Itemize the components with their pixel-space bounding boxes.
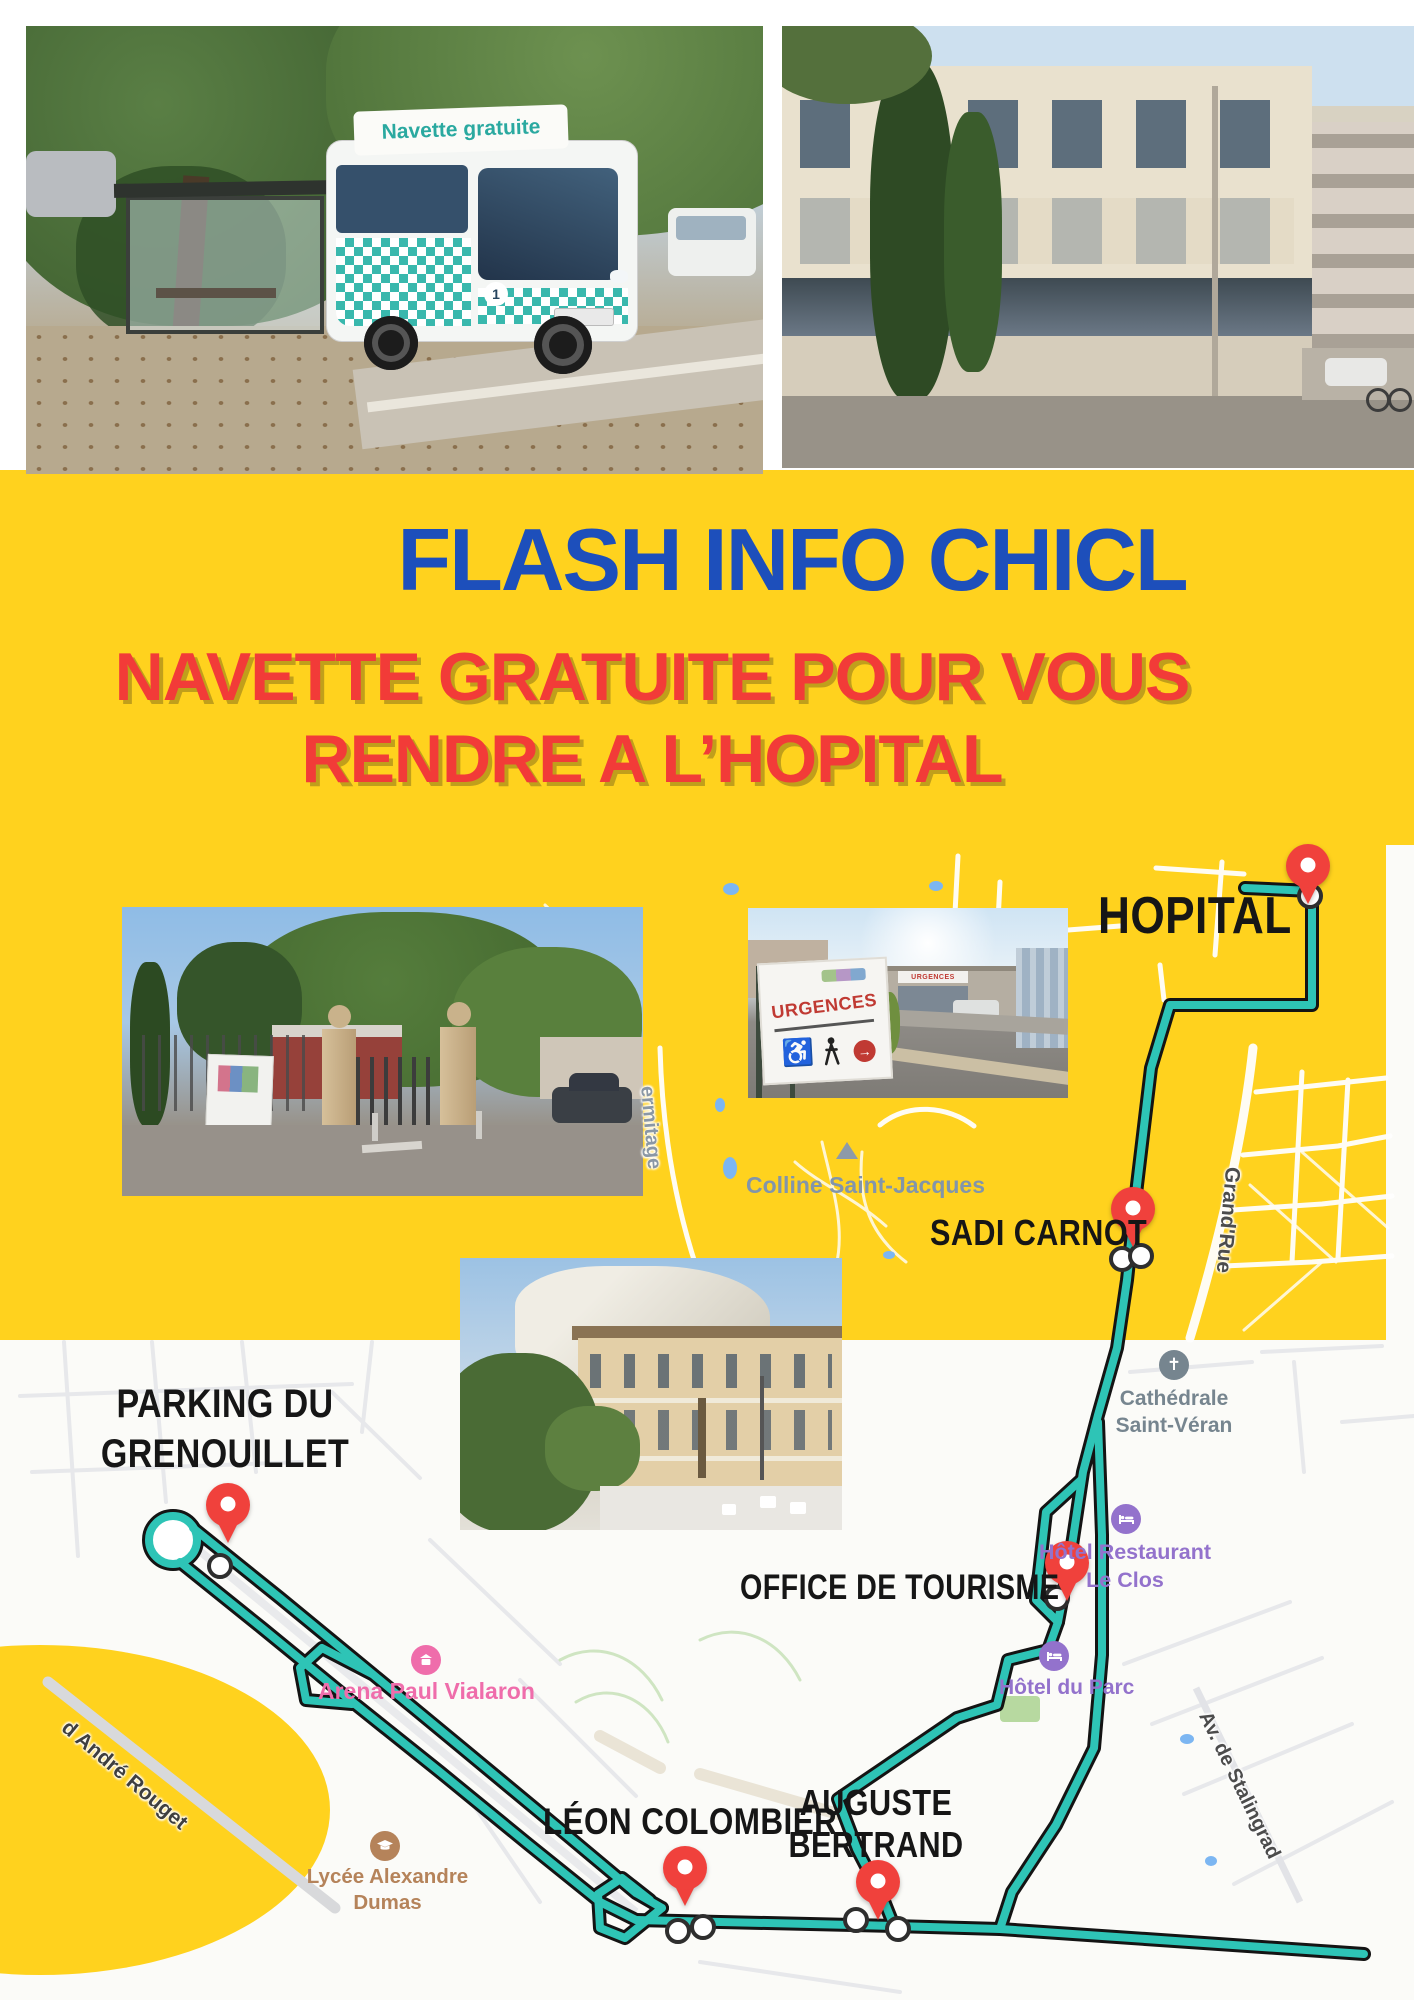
lamp-post bbox=[760, 1376, 764, 1480]
photo-chateau bbox=[460, 1258, 842, 1530]
poi-cathedrale-saint-veran: Cathédrale Saint-Véran bbox=[1094, 1385, 1254, 1439]
dark-car-roof bbox=[569, 1073, 619, 1091]
gate-pillar-ball bbox=[328, 1005, 351, 1028]
poi-lycee-alexandre-dumas: Lycée Alexandre Dumas bbox=[300, 1864, 475, 1916]
terrace-chair bbox=[722, 1504, 736, 1515]
pin-parking-grenouillet bbox=[205, 1483, 251, 1545]
wheelchair-icon: ♿ bbox=[781, 1037, 813, 1073]
stop-label-line: PARKING DU bbox=[98, 1379, 353, 1429]
bollard bbox=[372, 1113, 378, 1141]
sign-logo-dots bbox=[821, 968, 866, 982]
terrace-chair bbox=[790, 1502, 806, 1514]
stop-label-hopital: HOPITAL bbox=[1098, 886, 1292, 946]
gate-fence bbox=[356, 1057, 440, 1127]
pin-dot bbox=[1301, 858, 1316, 873]
church-icon: ✝ bbox=[1159, 1350, 1189, 1380]
photo-hospital-entrance bbox=[122, 907, 643, 1196]
stop-label-parking-grenouillet: PARKING DU GRENOUILLET bbox=[98, 1379, 353, 1479]
entrance-sign-text: URGENCES bbox=[911, 974, 955, 981]
window-row bbox=[590, 1354, 832, 1388]
poi-hotel-du-parc: Hôtel du Parc bbox=[999, 1676, 1134, 1700]
stop-label-line: GRENOUILLET bbox=[98, 1429, 353, 1479]
hotel-bed-icon bbox=[1039, 1641, 1069, 1671]
poi-line: Dumas bbox=[300, 1890, 475, 1916]
poi-hotel-restaurant-le-clos: Hôtel Restaurant Le Clos bbox=[1030, 1538, 1220, 1594]
entrance-canopy-sign: URGENCES bbox=[898, 971, 968, 983]
dark-car bbox=[552, 1087, 632, 1123]
sign-logo bbox=[218, 1065, 259, 1092]
gate-pillar-ball bbox=[447, 1002, 471, 1026]
stop-label-sadi-carnot: SADI CARNOT bbox=[930, 1212, 1147, 1254]
arena-icon bbox=[411, 1645, 441, 1675]
pin-dot bbox=[871, 1874, 886, 1889]
photo-urgences: URGENCES URGENCES ♿ → bbox=[748, 908, 1068, 1098]
poi-arena-paul-vialaron: Arena Paul Vialaron bbox=[318, 1678, 535, 1705]
flyer-poster: Navette gratuite 1 FLA bbox=[0, 0, 1414, 2000]
urgences-sign: URGENCES ♿ → bbox=[757, 957, 893, 1086]
pin-dot bbox=[678, 1860, 693, 1875]
poi-colline-saint-jacques: Colline Saint-Jacques bbox=[746, 1172, 985, 1199]
bare-tree-trunk bbox=[698, 1398, 706, 1478]
pin-auguste-bertrand bbox=[855, 1860, 901, 1922]
stop-label-line: BERTRAND bbox=[783, 1824, 970, 1866]
poi-line: Hôtel Restaurant bbox=[1030, 1538, 1220, 1566]
school-icon bbox=[370, 1831, 400, 1861]
poi-line: Le Clos bbox=[1030, 1566, 1220, 1594]
asphalt bbox=[122, 1125, 643, 1196]
terrace-chair bbox=[760, 1496, 776, 1508]
poi-line: Cathédrale bbox=[1094, 1385, 1254, 1412]
arrow-badge: → bbox=[853, 1039, 876, 1062]
stop-label-office-tourisme: OFFICE DE TOURISME bbox=[740, 1568, 1059, 1608]
tree-foliage bbox=[545, 1406, 640, 1491]
bollard bbox=[476, 1111, 482, 1139]
balcony-rail bbox=[578, 1398, 842, 1403]
stop-label-line: AUGUSTE bbox=[783, 1782, 970, 1824]
pin-leon-colombier bbox=[662, 1846, 708, 1908]
peak-icon bbox=[836, 1142, 858, 1159]
poi-line: Lycée Alexandre bbox=[300, 1864, 475, 1890]
poi-line: Saint-Véran bbox=[1094, 1412, 1254, 1439]
stop-label-auguste-bertrand: AUGUSTE BERTRAND bbox=[783, 1782, 970, 1866]
pin-hopital bbox=[1285, 844, 1331, 906]
hotel-bed-icon bbox=[1111, 1504, 1141, 1534]
pin-dot bbox=[221, 1497, 236, 1512]
